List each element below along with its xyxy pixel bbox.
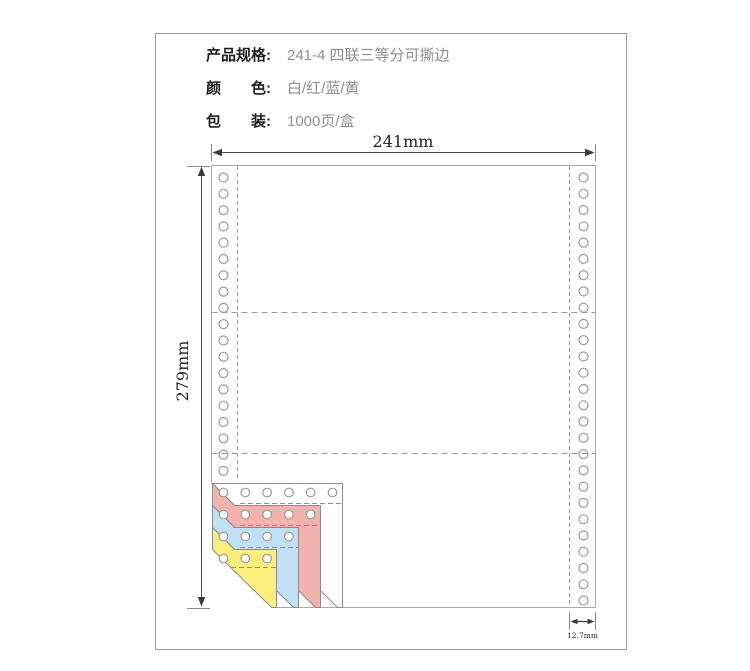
tractor-hole	[579, 466, 588, 475]
tractor-holes-right	[579, 173, 588, 605]
tractor-hole	[579, 385, 588, 394]
height-arrowhead-bottom	[198, 597, 205, 607]
tractor-hole	[328, 488, 337, 497]
tractor-hole	[219, 303, 228, 312]
tractor-hole	[579, 401, 588, 410]
strip-arrowhead-left	[571, 619, 578, 625]
tractor-hole	[219, 336, 228, 345]
tractor-hole	[579, 531, 588, 540]
tractor-hole	[219, 401, 228, 410]
tractor-hole	[579, 433, 588, 442]
tractor-hole	[579, 303, 588, 312]
tractor-hole	[219, 206, 228, 215]
tractor-hole	[579, 498, 588, 507]
tractor-hole	[219, 222, 228, 231]
tractor-hole	[579, 271, 588, 280]
tractor-hole	[219, 385, 228, 394]
tractor-hole	[285, 510, 294, 519]
tractor-hole	[219, 554, 228, 563]
strip-dimension: 12.7mm	[567, 612, 598, 640]
strip-dimension-label: 12.7mm	[567, 631, 598, 640]
tractor-hole	[579, 287, 588, 296]
tractor-hole	[579, 173, 588, 182]
tractor-hole	[579, 254, 588, 263]
tractor-hole	[219, 238, 228, 247]
tractor-hole	[579, 238, 588, 247]
tractor-hole	[579, 564, 588, 573]
ply-fan	[213, 484, 343, 608]
tractor-hole	[263, 554, 272, 563]
tractor-hole	[241, 510, 250, 519]
tractor-hole	[219, 352, 228, 361]
tractor-hole	[263, 488, 272, 497]
tractor-hole	[579, 368, 588, 377]
tractor-hole	[241, 488, 250, 497]
height-dimension: 279mm	[173, 167, 210, 609]
tractor-hole	[579, 417, 588, 426]
strip-arrowhead-right	[588, 619, 595, 625]
tractor-hole	[579, 547, 588, 556]
tractor-hole	[219, 450, 228, 459]
tractor-hole	[579, 580, 588, 589]
tractor-hole	[579, 482, 588, 491]
tractor-hole	[285, 488, 294, 497]
tractor-hole	[219, 255, 228, 264]
tractor-hole	[219, 320, 228, 329]
tractor-hole	[306, 510, 315, 519]
tractor-hole	[579, 222, 588, 231]
tractor-hole	[219, 189, 228, 198]
tractor-hole	[306, 488, 315, 497]
height-arrowhead-top	[198, 167, 205, 177]
tractor-hole	[241, 532, 250, 541]
tractor-hole	[219, 369, 228, 378]
tractor-hole	[241, 554, 250, 563]
tractor-hole	[219, 488, 228, 497]
tractor-hole	[579, 515, 588, 524]
width-arrowhead-left	[213, 149, 223, 156]
tractor-hole	[579, 596, 588, 605]
tractor-hole	[579, 206, 588, 215]
tractor-hole	[219, 532, 228, 541]
tractor-hole	[579, 189, 588, 198]
tractor-hole	[579, 450, 588, 459]
tractor-hole	[579, 319, 588, 328]
tractor-hole	[219, 287, 228, 296]
width-dimension-label: 241mm	[373, 132, 434, 151]
height-dimension-label: 279mm	[173, 341, 192, 402]
tractor-hole	[219, 466, 228, 475]
tractor-hole	[219, 418, 228, 427]
width-arrowhead-right	[585, 149, 595, 156]
tractor-holes-left	[219, 173, 228, 475]
tractor-hole	[579, 336, 588, 345]
tractor-hole	[219, 271, 228, 280]
product-spec-page: 产品规格: 241-4 四联三等分可撕边 颜 色: 白/红/蓝/黄 包 装: 1…	[0, 0, 750, 671]
tractor-hole	[219, 173, 228, 182]
tractor-hole	[263, 510, 272, 519]
tractor-hole	[579, 352, 588, 361]
tractor-hole	[285, 532, 294, 541]
tractor-hole	[219, 434, 228, 443]
width-dimension: 241mm	[212, 132, 596, 161]
tractor-hole	[263, 532, 272, 541]
paper-diagram: 241mm 279mm 12.7mm	[0, 0, 750, 671]
tractor-hole	[219, 510, 228, 519]
